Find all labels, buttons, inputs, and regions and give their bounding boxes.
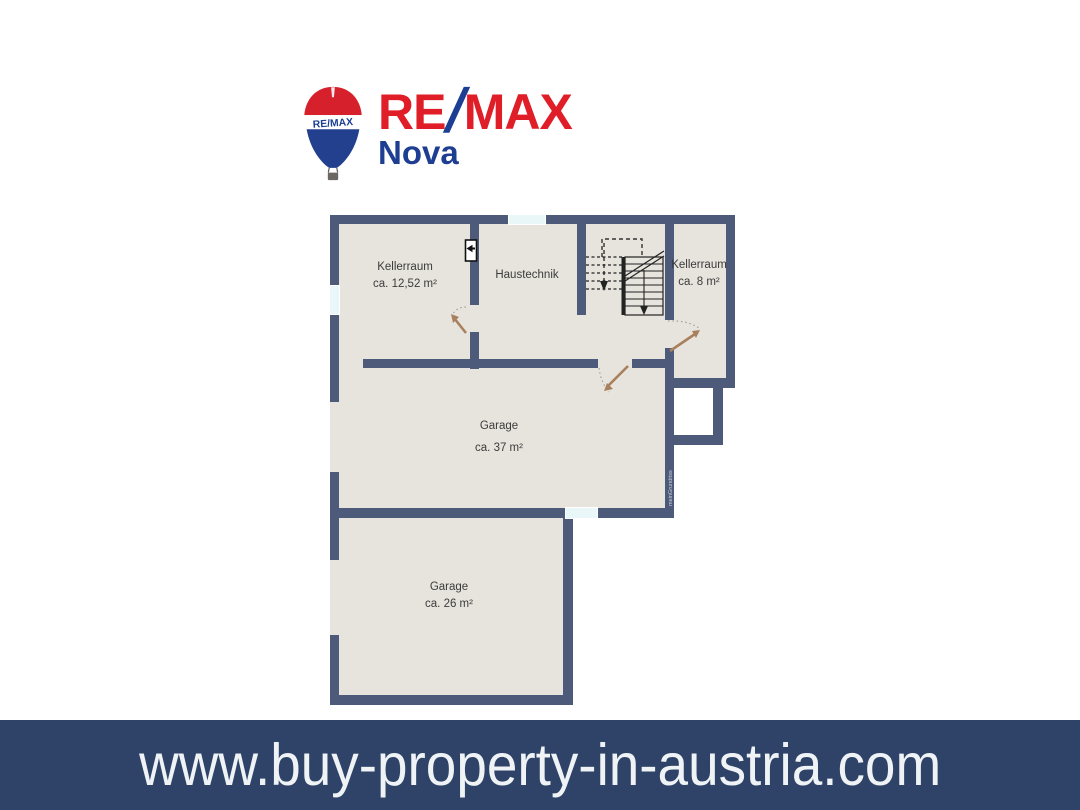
door-swing-kellerraum-left bbox=[451, 307, 466, 333]
door-marker-icon bbox=[466, 240, 477, 261]
staircase-icon bbox=[586, 239, 664, 315]
room-label-haustechnik: Haustechnik bbox=[495, 267, 558, 284]
brand-subname: Nova bbox=[378, 136, 572, 170]
brand-re: RE bbox=[378, 84, 445, 140]
remax-balloon-icon: RE/MAX bbox=[300, 84, 366, 182]
room-label-garage-small: Garage ca. 26 m² bbox=[425, 579, 473, 613]
room-label-kellerraum-left: Kellerraum ca. 12,52 m² bbox=[373, 259, 437, 293]
brand-wordmark: RE/MAX bbox=[378, 84, 572, 138]
plan-watermark: meinGrundriss bbox=[668, 470, 674, 506]
remax-logo: RE/MAX RE/MAX Nova bbox=[300, 84, 572, 182]
room-label-garage-large: Garage ca. 37 m² bbox=[475, 415, 523, 459]
footer-url: www.buy-property-in-austria.com bbox=[139, 731, 941, 799]
footer-bar: www.buy-property-in-austria.com bbox=[0, 720, 1080, 810]
brand-max: MAX bbox=[464, 84, 572, 140]
floor-plan: meinGrundriss Kellerraum ca. 12,52 m² Ha… bbox=[330, 215, 735, 705]
door-swing-kellerraum-right bbox=[668, 321, 700, 351]
room-label-kellerraum-right: Kellerraum ca. 8 m² bbox=[671, 257, 727, 291]
door-swing-garage bbox=[599, 366, 628, 392]
